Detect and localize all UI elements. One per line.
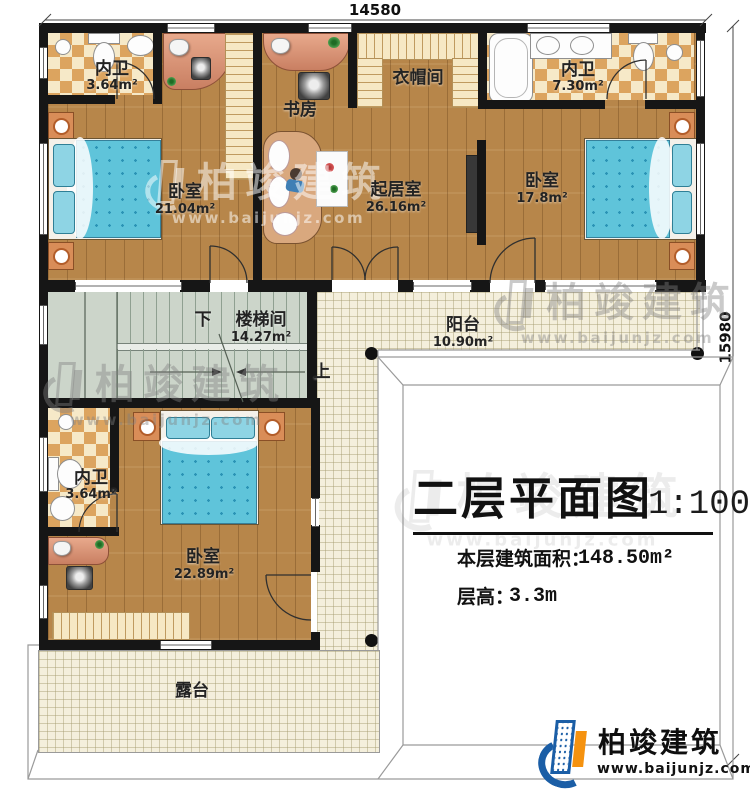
window — [697, 143, 704, 235]
room-area-bedroom-top-right: 17.8m² — [516, 192, 567, 205]
pillow — [53, 191, 75, 234]
bathtub-icon — [489, 33, 533, 103]
desk-lamp-icon — [53, 541, 71, 556]
dimension-top: 14580 — [340, 3, 410, 18]
room-area-bath-top-right: 7.30m² — [552, 80, 603, 93]
window — [40, 585, 47, 619]
wall — [39, 398, 320, 408]
walkway-floor — [317, 350, 378, 650]
floor-plan: 14580 15980 — [0, 0, 750, 794]
wall — [110, 408, 119, 492]
nightstand — [48, 242, 74, 270]
terrace-floor — [38, 650, 380, 753]
wall — [253, 33, 262, 280]
floor-height-value: 3.3m — [509, 587, 557, 607]
shower-icon — [55, 39, 71, 55]
plan-title: 二层平面图 — [413, 474, 653, 524]
desk — [48, 537, 109, 565]
wall — [398, 280, 413, 292]
dimension-dot — [365, 634, 378, 647]
sofa-cushion — [272, 212, 298, 236]
window — [167, 24, 215, 32]
shower-icon — [58, 414, 74, 430]
window — [75, 282, 182, 290]
coffee-table — [316, 151, 348, 207]
bed — [48, 138, 162, 240]
nightstand — [669, 112, 695, 140]
flower-icon — [325, 163, 334, 172]
window — [40, 47, 47, 79]
pillow — [672, 191, 692, 234]
sofa-cushion — [268, 140, 290, 172]
wall — [153, 33, 162, 104]
wall — [39, 280, 75, 292]
bathtub-inner — [494, 38, 528, 98]
room-label-study: 书房 — [283, 102, 317, 119]
room-label-cloakroom: 衣帽间 — [393, 70, 444, 87]
room-label-bedroom-top-right: 卧室 — [525, 173, 559, 190]
monitor-icon — [298, 72, 330, 100]
monitor-icon — [191, 57, 211, 80]
room-area-bedroom-bottom: 22.89m² — [174, 568, 234, 581]
room-label-stairwell: 楼梯间 — [236, 312, 287, 329]
floor-area-value: 148.50m² — [578, 549, 674, 569]
room-label-bedroom-top-left: 卧室 — [168, 184, 202, 201]
wall — [535, 280, 545, 292]
wall-tv — [477, 140, 486, 245]
wardrobe-rack — [225, 33, 255, 180]
monitor-icon — [66, 566, 93, 590]
wall — [478, 33, 487, 108]
wardrobe-rack — [52, 612, 190, 640]
sofa — [263, 131, 322, 244]
room-label-terrace: 露台 — [175, 683, 209, 700]
pillow — [672, 144, 692, 187]
wall — [645, 100, 705, 109]
nightstand — [669, 242, 695, 270]
nightstand — [133, 412, 160, 441]
wall — [478, 100, 605, 109]
dimension-dot — [365, 347, 378, 360]
window — [413, 282, 472, 290]
room-label-bath-bottom-left: 内卫 — [74, 470, 108, 487]
room-area-stairwell: 14.27m² — [231, 331, 291, 344]
sink-icon — [127, 35, 154, 56]
wall — [48, 95, 115, 104]
room-area-balcony: 10.90m² — [433, 336, 493, 349]
room-area-living: 26.16m² — [366, 201, 426, 214]
window — [40, 305, 47, 345]
plant-icon — [330, 185, 338, 193]
window — [40, 437, 47, 492]
wall — [180, 280, 210, 292]
room-label-bath-top-right: 内卫 — [561, 62, 595, 79]
wall — [248, 280, 332, 292]
logo-building-icon — [538, 720, 594, 782]
room-label-bath-top-left: 内卫 — [95, 61, 129, 78]
room-area-bedroom-top-left: 21.04m² — [155, 203, 215, 216]
window — [545, 282, 657, 290]
sink-icon — [570, 36, 594, 55]
window — [312, 498, 319, 527]
window — [40, 143, 47, 235]
title-underline — [413, 532, 713, 535]
pillow — [53, 144, 75, 187]
wall — [311, 398, 320, 498]
sink-icon — [536, 36, 560, 55]
pillow — [166, 417, 210, 439]
stair-up-label: 上 — [314, 364, 331, 381]
stairs-lower-flight — [117, 349, 307, 398]
plant-icon — [328, 37, 340, 48]
desk-lamp-icon — [271, 38, 290, 54]
room-label-living: 起居室 — [371, 182, 422, 199]
window — [697, 40, 704, 97]
dimension-dot — [691, 347, 704, 360]
nightstand — [48, 112, 74, 140]
desk-lamp-icon — [169, 39, 189, 56]
plan-scale: 1:100 — [648, 488, 750, 522]
dimension-right: 15980 — [719, 300, 734, 376]
shower-icon — [666, 44, 683, 61]
wall — [655, 280, 706, 292]
room-label-balcony: 阳台 — [446, 317, 480, 334]
study-desk — [263, 33, 350, 71]
window — [160, 641, 212, 649]
logo-website: www.baijunjz.com — [597, 762, 750, 776]
floor-height-label: 层高： — [457, 588, 514, 607]
stair-down-label: 下 — [195, 312, 212, 329]
bed — [584, 138, 697, 240]
floor-area-label: 本层建筑面积： — [457, 550, 590, 569]
wall — [48, 527, 119, 536]
cloakroom-rack — [452, 58, 480, 108]
pillow — [211, 417, 255, 439]
cloakroom-rack — [357, 58, 383, 108]
wall — [470, 280, 490, 292]
wall — [348, 33, 357, 108]
toilet-icon — [633, 42, 654, 71]
room-area-bath-top-left: 3.64m² — [86, 79, 137, 92]
nightstand — [258, 412, 285, 441]
person — [290, 168, 302, 180]
plant-icon — [95, 540, 104, 549]
wall — [311, 525, 320, 572]
room-label-bedroom-bottom: 卧室 — [186, 549, 220, 566]
cloakroom-rack — [357, 33, 480, 60]
balcony-floor — [317, 292, 700, 350]
window — [308, 24, 352, 32]
room-area-bath-bottom-left: 3.64m² — [65, 488, 116, 501]
logo-company: 柏竣建筑 — [598, 729, 722, 757]
plant-icon — [167, 77, 176, 86]
window — [527, 24, 610, 32]
bed — [160, 410, 259, 525]
